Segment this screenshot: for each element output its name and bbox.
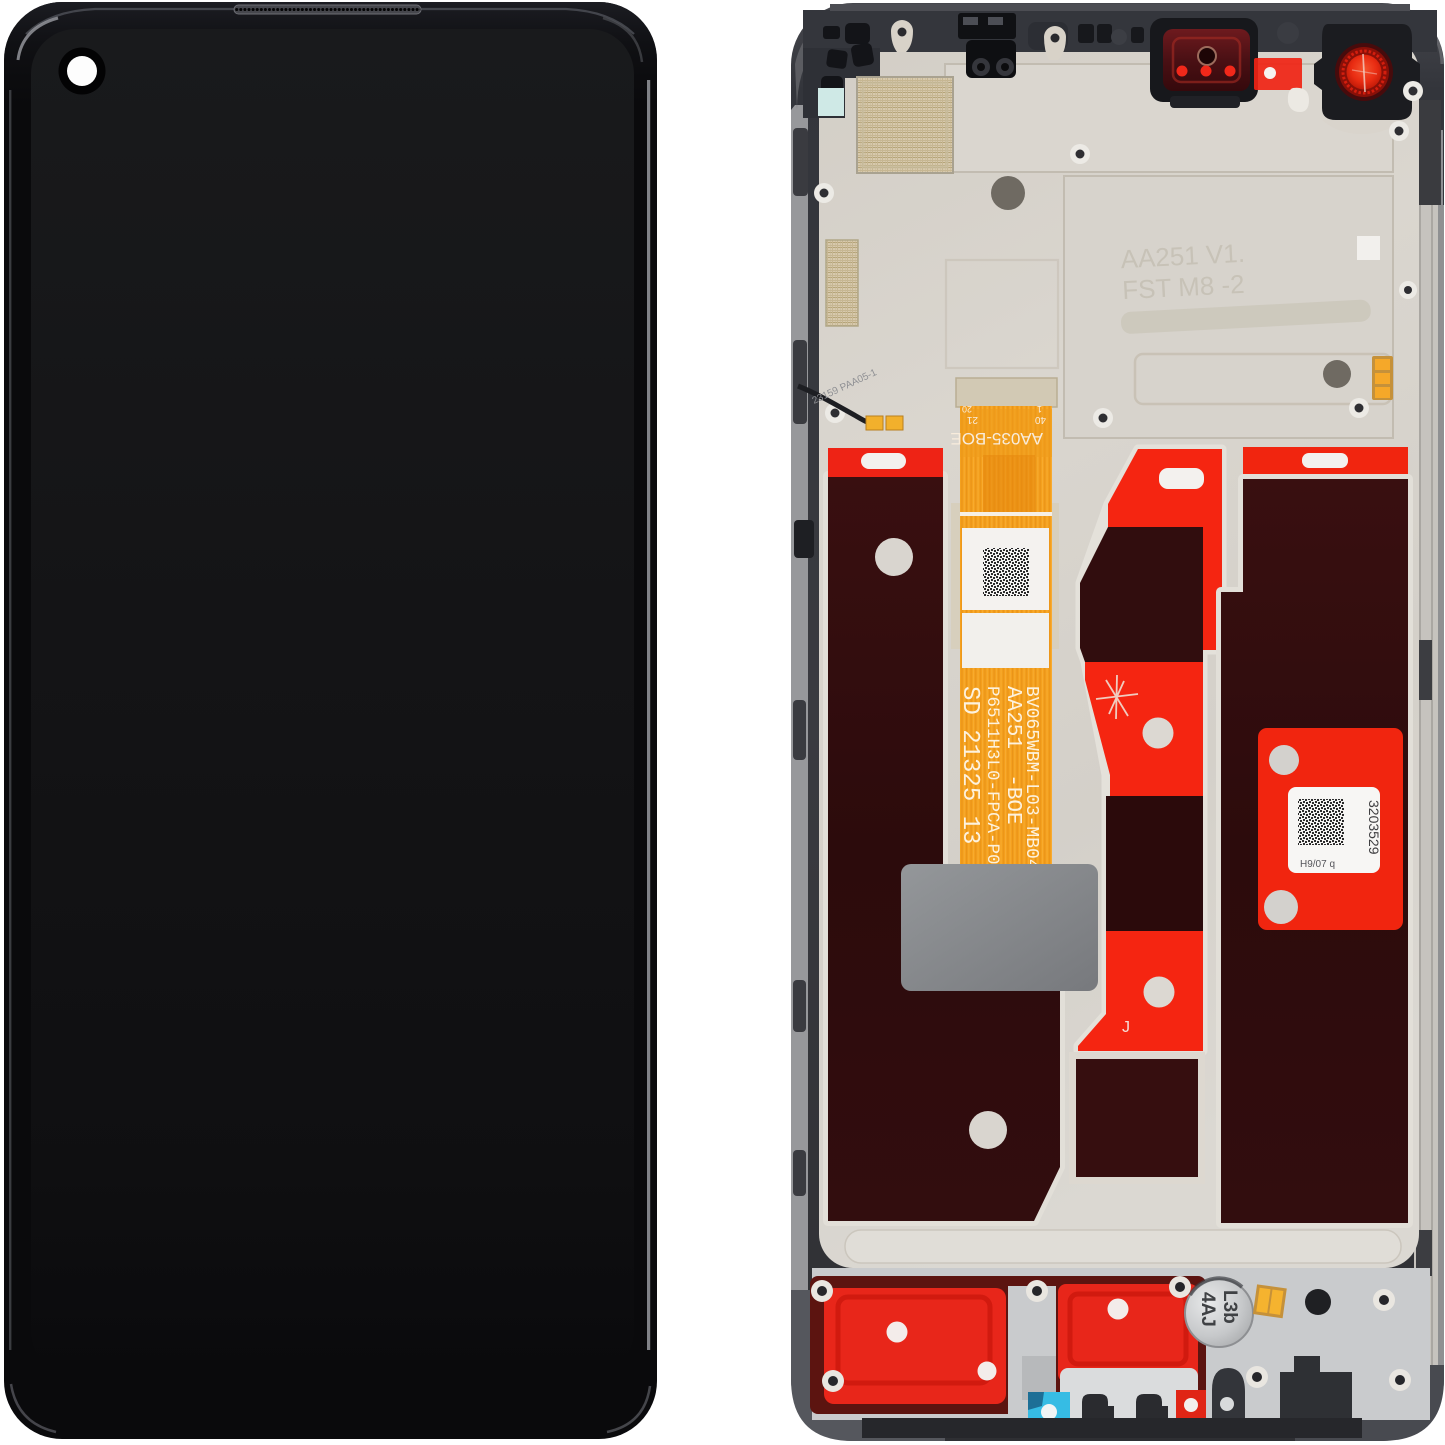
svg-text:20: 20 xyxy=(962,404,972,414)
svg-text:J: J xyxy=(1122,1019,1130,1036)
svg-text:FST M8 -2: FST M8 -2 xyxy=(1122,269,1246,305)
svg-text:SD 21325 13: SD 21325 13 xyxy=(956,686,983,844)
svg-text:H9/07 q: H9/07 q xyxy=(1300,859,1335,870)
svg-text:L3b: L3b xyxy=(1219,1290,1240,1324)
svg-text:AA251 -BOE: AA251 -BOE xyxy=(1001,686,1024,825)
svg-text:1: 1 xyxy=(1037,404,1042,414)
svg-text:BV065WBM-L03-MB04: BV065WBM-L03-MB04 xyxy=(1021,686,1041,870)
svg-text:3203529: 3203529 xyxy=(1366,800,1382,855)
svg-text:40: 40 xyxy=(1034,414,1046,425)
svg-text:4AJ: 4AJ xyxy=(1197,1292,1218,1327)
svg-text:21: 21 xyxy=(966,414,978,425)
svg-text:P6511H3L0-FPCA-P0.0: P6511H3L0-FPCA-P0.0 xyxy=(982,686,1002,886)
svg-text:AA035-BOE: AA035-BOE xyxy=(950,429,1043,448)
